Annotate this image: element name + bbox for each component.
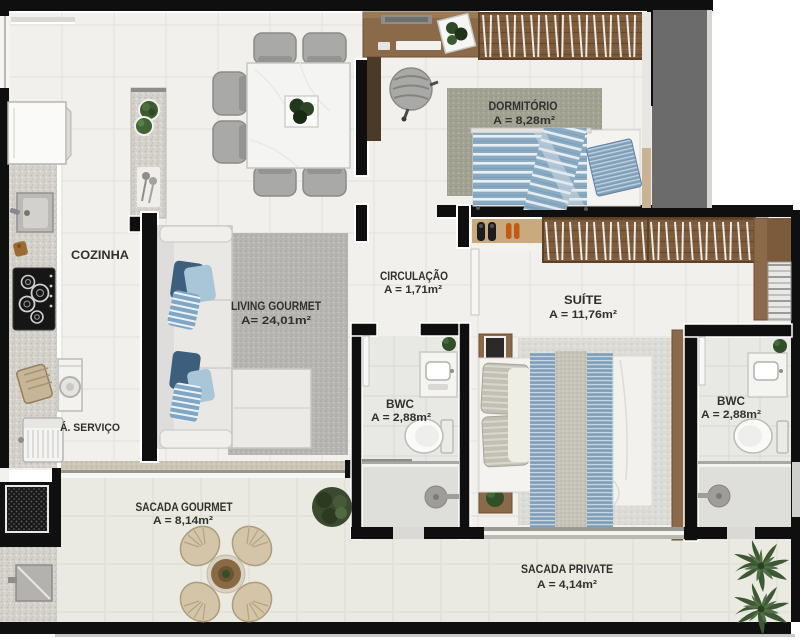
svg-text:SACADA GOURMET: SACADA GOURMET bbox=[136, 502, 233, 514]
svg-text:SACADA PRIVATE: SACADA PRIVATE bbox=[521, 564, 613, 576]
svg-text:CIRCULAÇÃO: CIRCULAÇÃO bbox=[380, 270, 448, 283]
svg-text:COZINHA: COZINHA bbox=[71, 250, 129, 262]
svg-text:A = 8,28m²: A = 8,28m² bbox=[493, 115, 555, 127]
svg-text:Á. SERVIÇO: Á. SERVIÇO bbox=[60, 421, 120, 434]
svg-text:A = 11,76m²: A = 11,76m² bbox=[549, 309, 617, 321]
svg-text:A = 1,71m²: A = 1,71m² bbox=[384, 284, 442, 296]
svg-text:BWC: BWC bbox=[717, 396, 745, 408]
svg-text:A = 2,88m²: A = 2,88m² bbox=[701, 409, 761, 421]
svg-text:A = 8,14m²: A = 8,14m² bbox=[153, 515, 213, 527]
svg-text:A= 24,01m²: A= 24,01m² bbox=[241, 315, 311, 327]
svg-text:A = 4,14m²: A = 4,14m² bbox=[537, 579, 597, 591]
svg-text:LIVING GOURMET: LIVING GOURMET bbox=[231, 301, 321, 313]
svg-text:SUÍTE: SUÍTE bbox=[564, 294, 602, 307]
svg-text:DORMITÓRIO: DORMITÓRIO bbox=[489, 100, 558, 113]
svg-text:A = 2,88m²: A = 2,88m² bbox=[371, 412, 431, 424]
svg-text:BWC: BWC bbox=[386, 399, 414, 411]
